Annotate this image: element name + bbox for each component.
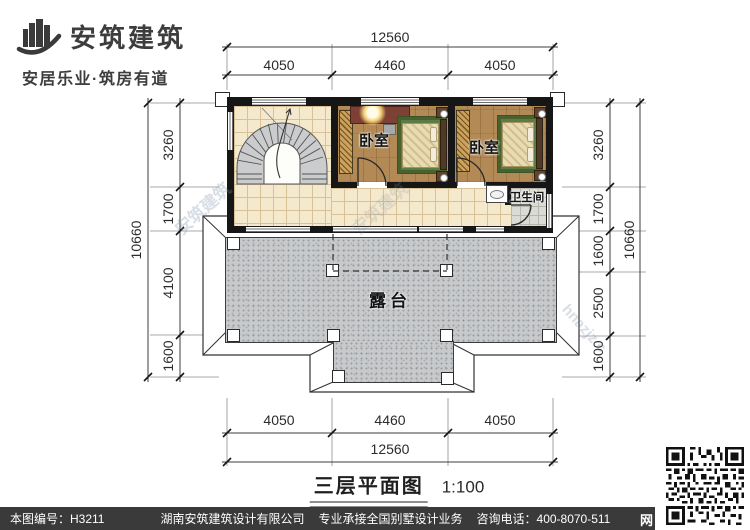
dim-bottom-seg1: 4050	[263, 412, 294, 428]
window	[227, 112, 234, 150]
dim-right-seg3: 1600	[590, 235, 606, 266]
drawing-title-block: 三层平面图 1:100	[310, 470, 485, 503]
dim-left-total: 10660	[128, 221, 144, 260]
footer-phone: 咨询电话：400-8070-511	[477, 510, 611, 527]
dim-top-seg3: 4050	[484, 57, 515, 73]
bed-headboard	[440, 119, 447, 170]
room-label-bathroom: 卫生间	[510, 189, 545, 205]
watermark-text: 安筑建筑	[168, 175, 235, 239]
dim-top-seg1: 4050	[263, 57, 294, 73]
bed-headboard	[536, 118, 543, 169]
dim-left-seg1: 3260	[160, 129, 176, 160]
nightstand	[436, 107, 448, 118]
window	[252, 97, 306, 106]
dim-right-seg4: 2500	[590, 287, 606, 318]
terrace-column	[327, 329, 340, 342]
window	[546, 194, 553, 228]
drawing-scale: 1:100	[442, 478, 485, 498]
pillow	[527, 127, 534, 142]
window	[473, 97, 527, 106]
terrace-door-window	[333, 226, 417, 233]
terrace-column	[440, 329, 453, 342]
nightstand	[534, 170, 546, 181]
footer-service: 专业承接全国别墅设计业务	[319, 510, 463, 527]
dim-top-seg2: 4460	[374, 57, 405, 73]
window	[476, 226, 504, 233]
dim-bottom-seg2: 4460	[374, 412, 405, 428]
floor-plan-page: 12560 4050 4460 4050 4050 4460 4050 1256…	[0, 0, 750, 530]
dim-bottom-total: 12560	[371, 441, 410, 457]
terrace-column	[227, 329, 240, 342]
drawing-title: 三层平面图	[310, 470, 428, 503]
terrace-column	[441, 372, 454, 385]
dim-left-seg4: 1600	[160, 340, 176, 371]
dim-right-seg2: 1700	[590, 193, 606, 224]
qr-code	[666, 447, 744, 525]
sink-counter	[486, 185, 508, 203]
dim-right-seg1: 3260	[590, 129, 606, 160]
pillow	[430, 127, 437, 142]
drawing-number: 本图编号：H3211	[10, 510, 104, 527]
room-label-terrace: 露台	[369, 287, 411, 312]
window	[419, 226, 463, 233]
pillow	[430, 147, 437, 162]
pillow	[527, 147, 534, 162]
footer-web-label: 网	[640, 510, 653, 529]
dim-right-seg5: 1600	[590, 340, 606, 371]
nightstand	[436, 171, 448, 182]
terrace-column	[542, 329, 555, 342]
floor-corridor	[331, 188, 511, 226]
nightstand	[534, 107, 546, 118]
room-label-bedroom-2: 卧室	[469, 137, 499, 158]
dim-right-total: 10660	[621, 221, 637, 260]
wall-corridor	[387, 182, 457, 188]
wardrobe	[456, 110, 470, 172]
wall-partition-bedrooms	[448, 106, 455, 182]
room-label-bedroom-1: 卧室	[359, 130, 389, 151]
logo: 安筑建筑 安居乐业·筑房有道	[16, 14, 186, 89]
terrace-column	[332, 370, 345, 383]
terrace-floor-extension	[333, 341, 454, 383]
terrace-column	[542, 237, 555, 250]
floor-stair-hall	[234, 106, 331, 226]
terrace-column	[440, 264, 453, 277]
footer-company: 湖南安筑建筑设计有限公司	[160, 510, 304, 527]
sink	[490, 190, 504, 199]
dim-left-seg2: 1700	[160, 193, 176, 224]
dim-top-total: 12560	[371, 29, 410, 45]
terrace-column	[326, 264, 339, 277]
window	[361, 97, 419, 106]
terrace-column	[227, 237, 240, 250]
window	[246, 226, 310, 233]
dim-left-seg3: 4100	[160, 267, 176, 298]
wall-corridor	[338, 182, 357, 188]
footer-bar: 本图编号：H3211 湖南安筑建筑设计有限公司 专业承接全国别墅设计业务 咨询电…	[0, 507, 750, 530]
logo-tagline: 安居乐业·筑房有道	[22, 65, 186, 89]
qr-panel	[655, 440, 750, 530]
wall-partition-stair	[331, 106, 338, 188]
logo-name: 安筑建筑	[70, 18, 186, 55]
dim-bottom-seg3: 4050	[484, 412, 515, 428]
logo-building-icon	[16, 14, 62, 58]
